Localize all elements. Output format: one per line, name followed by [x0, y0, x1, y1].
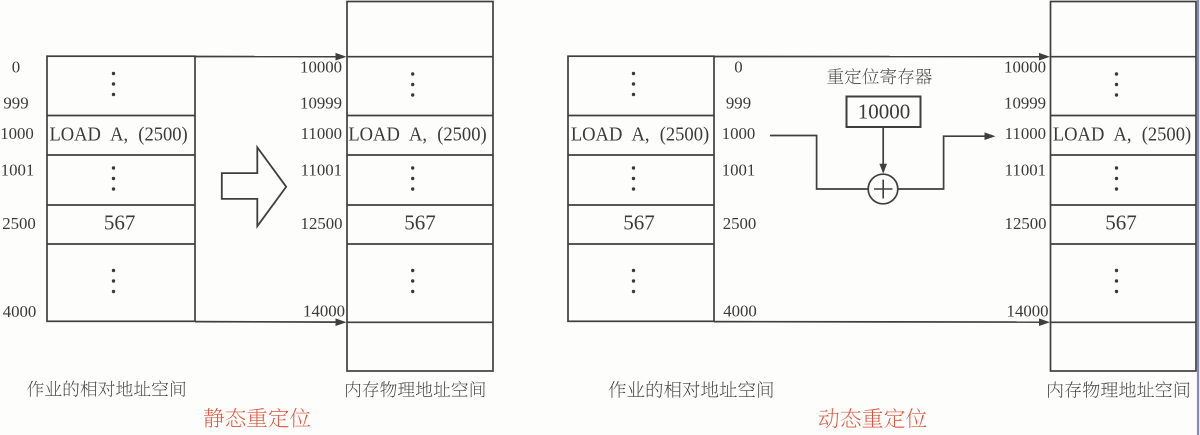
svg-text:1001: 1001: [1, 161, 35, 180]
svg-text:10000: 10000: [300, 58, 342, 77]
svg-text:1000: 1000: [0, 124, 34, 143]
svg-text:11000: 11000: [301, 124, 342, 143]
svg-text:10000: 10000: [1004, 58, 1046, 77]
svg-text:1000: 1000: [722, 124, 756, 143]
svg-text:14000: 14000: [1007, 302, 1049, 321]
svg-text:LOAD A, (2500): LOAD A, (2500): [348, 124, 486, 146]
svg-text:2500: 2500: [723, 214, 757, 233]
svg-text:LOAD A, (2500): LOAD A, (2500): [1053, 124, 1191, 146]
svg-text:0: 0: [734, 58, 742, 77]
svg-text:1001: 1001: [722, 161, 756, 180]
svg-text:567: 567: [1105, 211, 1137, 235]
svg-text:999: 999: [3, 94, 28, 113]
svg-text:11000: 11000: [1005, 124, 1046, 143]
svg-text:567: 567: [623, 211, 655, 235]
svg-text:567: 567: [104, 211, 136, 235]
svg-text:4000: 4000: [3, 302, 37, 321]
svg-text:0: 0: [12, 58, 20, 77]
svg-text:12500: 12500: [301, 214, 343, 233]
svg-text:11001: 11001: [301, 161, 342, 180]
svg-text:567: 567: [404, 211, 436, 235]
svg-text:LOAD A, (2500): LOAD A, (2500): [571, 124, 709, 146]
svg-text:12500: 12500: [1005, 214, 1047, 233]
svg-text:10000: 10000: [858, 100, 910, 124]
svg-text:2500: 2500: [2, 214, 36, 233]
svg-text:10999: 10999: [1004, 94, 1046, 113]
svg-text:11001: 11001: [1005, 161, 1046, 180]
svg-text:LOAD A, (2500): LOAD A, (2500): [49, 124, 187, 146]
svg-text:14000: 14000: [303, 302, 345, 321]
svg-text:10999: 10999: [300, 94, 342, 113]
svg-text:4000: 4000: [723, 302, 757, 321]
svg-text:999: 999: [726, 94, 751, 113]
